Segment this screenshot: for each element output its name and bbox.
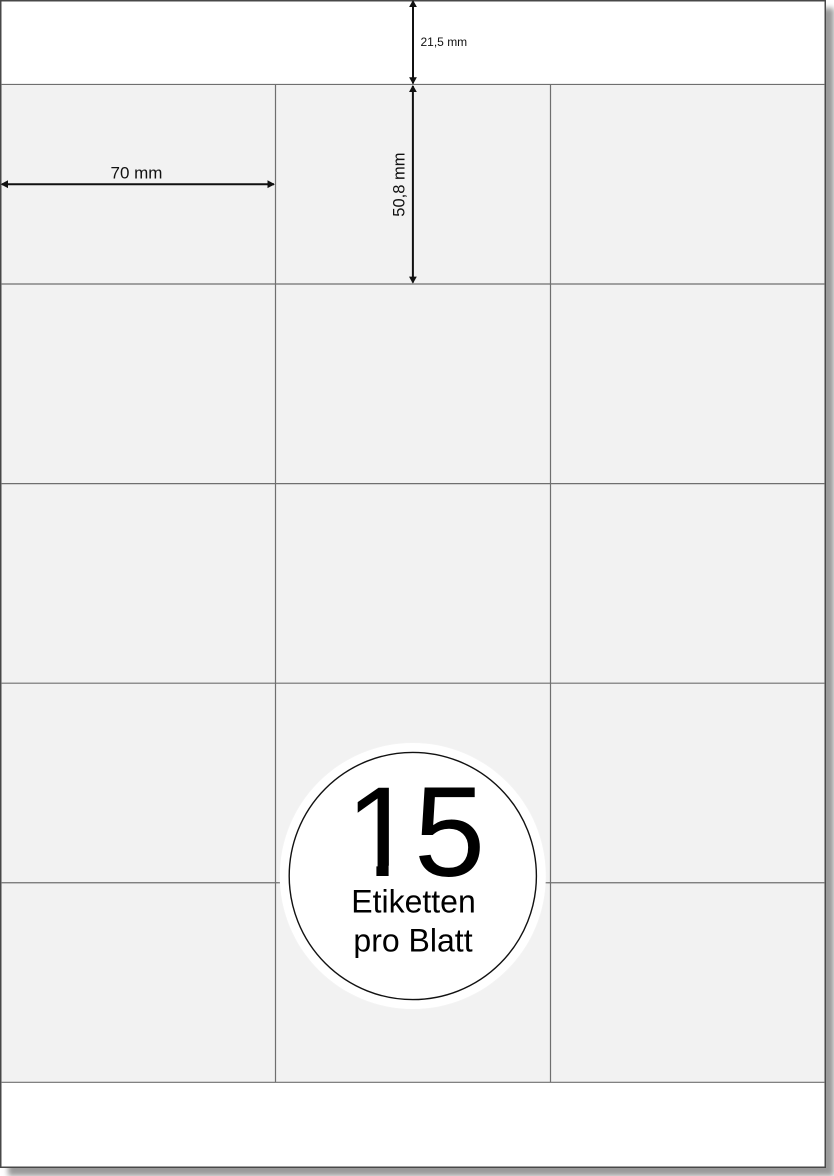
svg-text:50,8 mm: 50,8 mm bbox=[391, 153, 409, 217]
svg-text:Etiketten: Etiketten bbox=[351, 884, 476, 920]
svg-text:pro Blatt: pro Blatt bbox=[353, 923, 472, 959]
svg-text:15: 15 bbox=[345, 761, 482, 904]
svg-text:21,5 mm: 21,5 mm bbox=[421, 35, 468, 49]
svg-text:70 mm: 70 mm bbox=[111, 164, 163, 183]
